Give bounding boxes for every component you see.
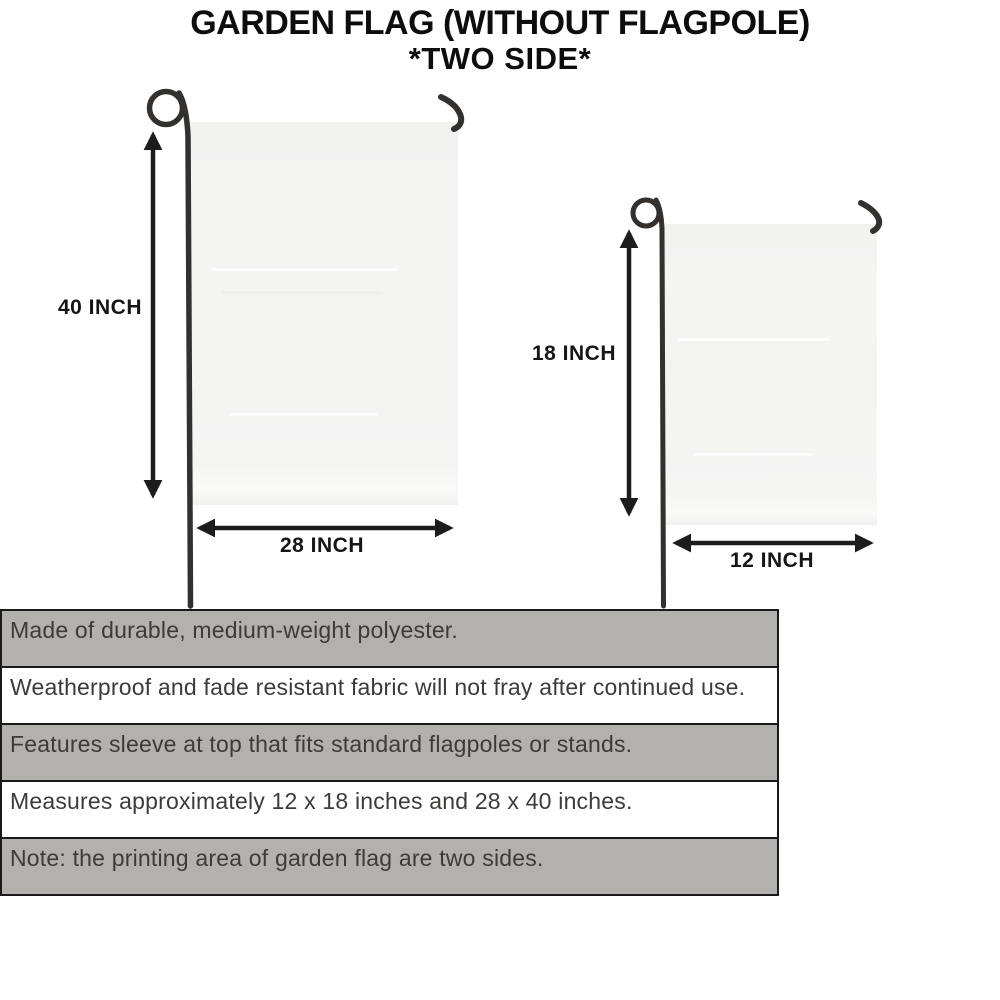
small-flagpole — [656, 200, 664, 606]
feature-list: Made of durable, medium-weight polyester… — [0, 609, 779, 896]
large-flagpole — [179, 93, 191, 606]
garden-flag-infographic: GARDEN FLAG (WITHOUT FLAGPOLE) *TWO SIDE… — [0, 0, 1000, 1000]
large-flagpole-loop-icon — [150, 92, 183, 125]
small-flag-height-label: 18 INCH — [500, 342, 616, 366]
large-flag-hook-icon — [441, 97, 461, 129]
feature-row-measures: Measures approximately 12 x 18 inches an… — [2, 782, 777, 839]
diagram-linework — [0, 0, 1000, 620]
small-flagpole-loop-icon — [633, 200, 659, 226]
feature-row-sleeve: Features sleeve at top that fits standar… — [2, 725, 777, 782]
feature-row-note: Note: the printing area of garden flag a… — [2, 839, 777, 894]
large-flag-width-label: 28 INCH — [242, 534, 402, 558]
feature-row-weatherproof: Weatherproof and fade resistant fabric w… — [2, 668, 777, 725]
large-flag-height-label: 40 INCH — [30, 296, 142, 320]
feature-row-material: Made of durable, medium-weight polyester… — [2, 611, 777, 668]
small-flag-hook-icon — [861, 203, 879, 231]
small-flag-width-label: 12 INCH — [692, 549, 852, 573]
